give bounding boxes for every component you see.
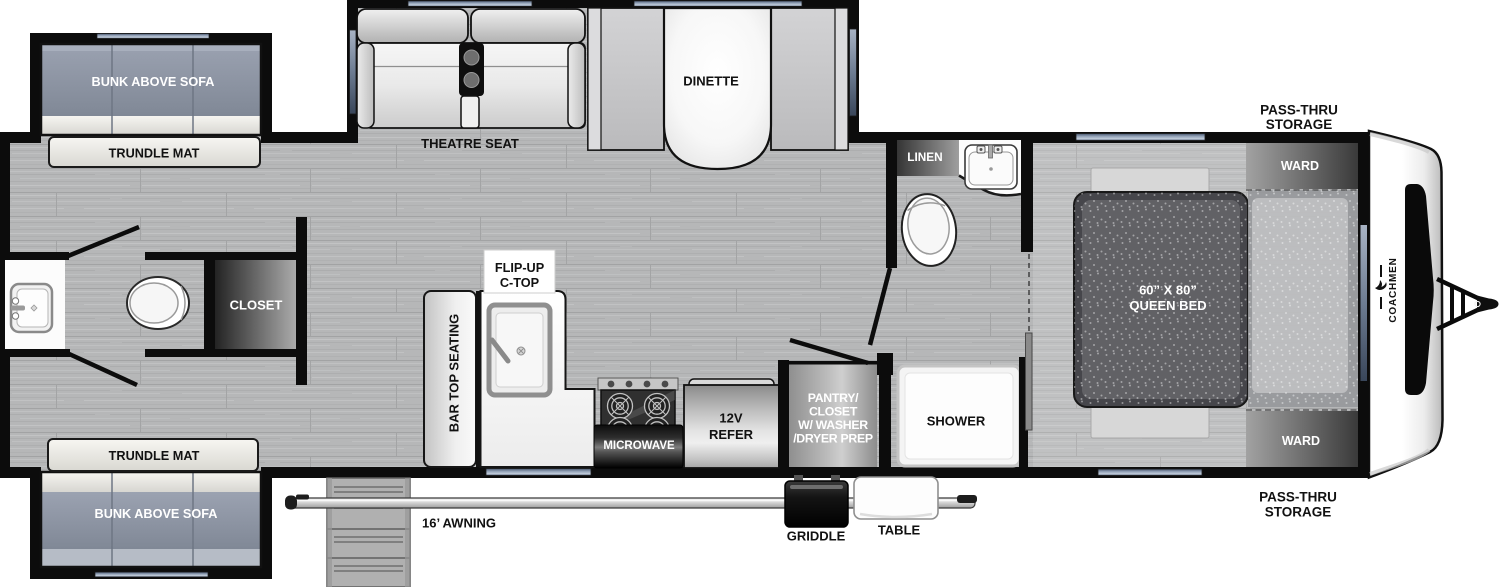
svg-text:W/ WASHER: W/ WASHER xyxy=(798,418,868,432)
svg-text:PASS-THRU: PASS-THRU xyxy=(1259,490,1337,505)
svg-text:BUNK ABOVE SOFA: BUNK ABOVE SOFA xyxy=(95,507,218,521)
svg-text:TABLE: TABLE xyxy=(878,523,921,538)
svg-text:COACHMEN: COACHMEN xyxy=(1388,257,1399,322)
svg-text:WARD: WARD xyxy=(1281,159,1319,173)
svg-text:CLOSET: CLOSET xyxy=(809,405,858,419)
svg-text:GRIDDLE: GRIDDLE xyxy=(787,529,846,544)
svg-text:PANTRY/: PANTRY/ xyxy=(808,391,859,405)
svg-text:FLIP-UP: FLIP-UP xyxy=(495,261,545,275)
svg-text:12V: 12V xyxy=(719,411,742,426)
svg-text:/DRYER PREP: /DRYER PREP xyxy=(793,432,873,446)
svg-text:TRUNDLE MAT: TRUNDLE MAT xyxy=(109,147,200,161)
svg-text:STORAGE: STORAGE xyxy=(1265,505,1332,520)
svg-text:MICROWAVE: MICROWAVE xyxy=(603,440,675,452)
svg-text:TRUNDLE MAT: TRUNDLE MAT xyxy=(109,449,200,463)
svg-text:DINETTE: DINETTE xyxy=(683,74,739,89)
svg-text:BUNK ABOVE SOFA: BUNK ABOVE SOFA xyxy=(92,75,215,89)
svg-text:CLOSET: CLOSET xyxy=(230,298,283,313)
svg-text:SHOWER: SHOWER xyxy=(927,414,986,429)
svg-text:WARD: WARD xyxy=(1282,434,1320,448)
svg-text:BAR TOP SEATING: BAR TOP SEATING xyxy=(447,314,462,432)
svg-text:REFER: REFER xyxy=(709,427,754,442)
svg-text:16’ AWNING: 16’ AWNING xyxy=(422,516,496,531)
svg-text:PASS-THRU: PASS-THRU xyxy=(1260,103,1338,118)
svg-text:QUEEN BED: QUEEN BED xyxy=(1129,298,1206,313)
svg-text:C-TOP: C-TOP xyxy=(500,276,540,290)
svg-text:STORAGE: STORAGE xyxy=(1266,117,1333,132)
svg-text:LINEN: LINEN xyxy=(907,150,942,164)
svg-text:60” X 80”: 60” X 80” xyxy=(1139,283,1197,298)
svg-text:THEATRE SEAT: THEATRE SEAT xyxy=(421,136,519,151)
